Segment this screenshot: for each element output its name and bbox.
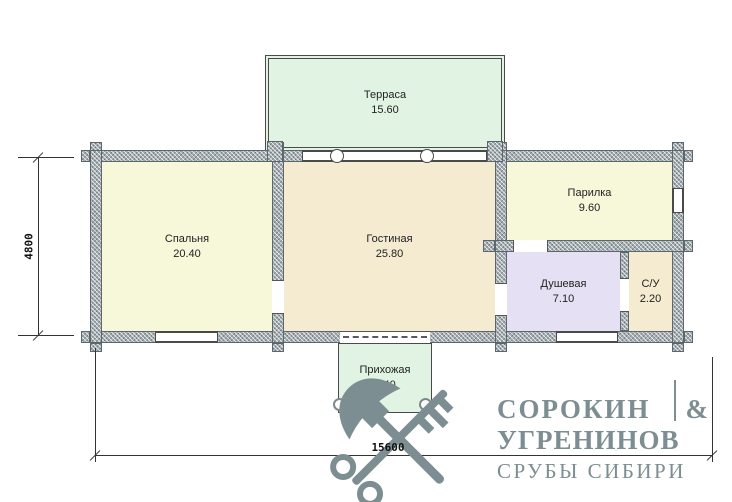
room-name: С/У [640,277,661,292]
room-area: 2.20 [640,292,661,307]
room-wc: С/У 2.20 [629,252,672,331]
axe-and-key-icon [323,374,473,502]
window-shower [556,331,618,343]
brand-name1: СОРОКИН [497,394,650,424]
dim-height-label: 4800 [23,225,36,269]
wall-bedroom-living [272,150,284,343]
brand-line1: СОРОКИН & [497,394,710,424]
log-end [90,343,102,352]
door-shower [495,283,507,316]
log-end [483,240,495,252]
brand-tagline: СРУБЫ СИБИРИ [497,458,710,484]
room-label-wc: С/У 2.20 [640,277,661,307]
dim-ext-left [95,348,96,462]
door-steam [513,240,548,252]
room-name: Спальня [165,232,209,247]
room-living: Гостиная 25.80 [284,162,495,331]
entry-opening [340,331,430,343]
room-name: Гостиная [366,232,412,247]
log-end [90,142,102,151]
room-shower: Душевая 7.10 [507,252,620,331]
room-steam: Парилка 9.60 [507,162,672,240]
dim-ext-bottom [18,335,74,336]
room-area: 7.10 [541,292,587,307]
room-label-bedroom: Спальня 20.40 [165,232,209,262]
log-end [684,150,693,162]
dim-ext-top [18,157,74,158]
dim-width-label: 15600 [358,441,418,454]
brand-ampersand: & [677,394,711,424]
room-area: 9.60 [568,201,612,216]
log-end [672,343,684,352]
log-end [272,343,284,352]
dim-ext-right [712,357,713,462]
room-area: 15.60 [364,103,406,118]
door-wc [620,278,629,312]
room-name: Душевая [541,277,587,292]
room-label-steam: Парилка 9.60 [568,186,612,216]
brand-name2: УГРЕНИНОВ [497,424,710,456]
terrace-post-right [487,141,503,162]
log-end [684,331,693,343]
door-bedroom [272,280,284,314]
log-end [495,343,507,352]
wall-left [90,150,102,343]
log-end [81,150,90,162]
dim-line-vertical [38,157,39,335]
room-label-living: Гостиная 25.80 [366,232,412,262]
log-end [684,240,693,252]
room-label-terrace: Терраса 15.60 [364,88,406,118]
room-bedroom: Спальня 20.40 [102,162,272,331]
log-end [81,331,90,343]
room-name: Терраса [364,88,406,103]
brand-wordmark: СОРОКИН & УГРЕНИНОВ СРУБЫ СИБИРИ [497,394,710,484]
glazing-post-icon [330,149,344,163]
room-name: Парилка [568,186,612,201]
glazing-post-icon [420,149,434,163]
room-label-shower: Душевая 7.10 [541,277,587,307]
terrace-post-left [267,141,283,162]
room-area: 25.80 [366,247,412,262]
window-bedroom [155,331,218,343]
room-area: 20.40 [165,247,209,262]
floor-plan-canvas: Терраса 15.60 Спальня 20.40 Гостиная 25.… [0,0,732,502]
log-end [672,142,684,151]
room-terrace: Терраса 15.60 [265,55,505,151]
window-steam [672,188,684,213]
